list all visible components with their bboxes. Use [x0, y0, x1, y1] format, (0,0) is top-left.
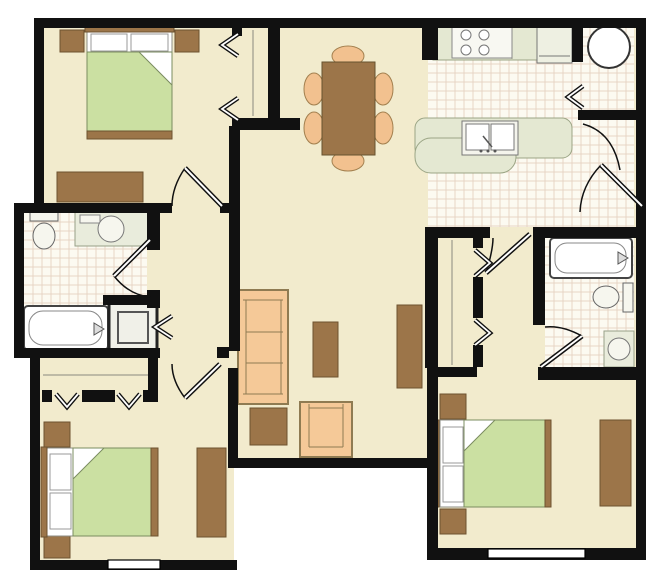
wall	[82, 390, 115, 402]
wall	[473, 345, 483, 367]
dining-chair	[373, 73, 393, 105]
wall	[427, 368, 438, 560]
window	[488, 549, 585, 558]
floor-plan	[0, 0, 659, 588]
bed3-headboard	[41, 447, 47, 537]
wall	[42, 390, 52, 402]
stove-burner	[461, 45, 471, 55]
window	[108, 560, 160, 569]
nightstand	[44, 536, 70, 558]
dining-chair	[304, 73, 324, 105]
sink-knob	[480, 150, 483, 153]
dresser	[57, 172, 143, 202]
sink-basin	[491, 124, 514, 150]
wall	[636, 18, 646, 560]
wall	[228, 368, 238, 462]
wall	[34, 18, 646, 28]
wall	[473, 277, 483, 318]
wall	[572, 18, 583, 62]
nightstand	[440, 509, 466, 534]
water-heater	[588, 26, 630, 68]
nightstand	[44, 422, 70, 447]
wall	[229, 126, 240, 351]
end-table	[250, 408, 287, 445]
vanity-sink	[608, 338, 630, 360]
wall	[148, 358, 158, 402]
dining-chair	[304, 112, 324, 144]
wall	[425, 227, 438, 368]
wall	[103, 295, 147, 305]
stove-burner	[479, 30, 489, 40]
pillow	[131, 34, 168, 51]
pillow	[443, 427, 463, 463]
wall	[438, 367, 477, 377]
wall	[147, 290, 160, 308]
wall	[533, 238, 545, 325]
sink-basin	[466, 124, 489, 150]
refrigerator	[537, 25, 572, 63]
stove-burner	[461, 30, 471, 40]
wall	[473, 238, 483, 248]
armchair	[300, 402, 352, 457]
pillow	[91, 34, 127, 51]
dining-table	[322, 62, 375, 155]
bed1-foot	[87, 131, 172, 139]
nightstand	[440, 394, 466, 419]
sink-knob	[487, 150, 490, 153]
wall	[34, 18, 44, 213]
media-console	[397, 305, 422, 388]
floor-plan-canvas	[0, 0, 659, 588]
toilet-tank	[623, 283, 633, 312]
nightstand	[175, 30, 199, 52]
pillow	[443, 466, 463, 502]
vanity-tray	[80, 215, 100, 223]
bed3-foot	[151, 448, 158, 536]
stove-burner	[479, 45, 489, 55]
wall	[268, 18, 280, 130]
wall	[217, 347, 229, 358]
wall	[533, 227, 636, 238]
wall	[422, 18, 438, 60]
wall	[14, 203, 24, 358]
wall	[578, 110, 646, 120]
wall	[30, 348, 40, 570]
bed4-foot	[545, 420, 551, 507]
coffee-table	[313, 322, 338, 377]
pillow	[50, 454, 71, 490]
toilet-bowl	[593, 286, 619, 308]
sink-knob	[494, 150, 497, 153]
dresser	[197, 448, 226, 537]
wall	[228, 458, 437, 468]
nightstand	[60, 30, 84, 52]
wall	[232, 118, 300, 130]
toilet-bowl	[33, 223, 55, 249]
dresser	[600, 420, 631, 506]
dining-chair	[373, 112, 393, 144]
wall	[538, 367, 646, 380]
vanity-sink	[98, 216, 124, 242]
pillow	[50, 493, 71, 529]
